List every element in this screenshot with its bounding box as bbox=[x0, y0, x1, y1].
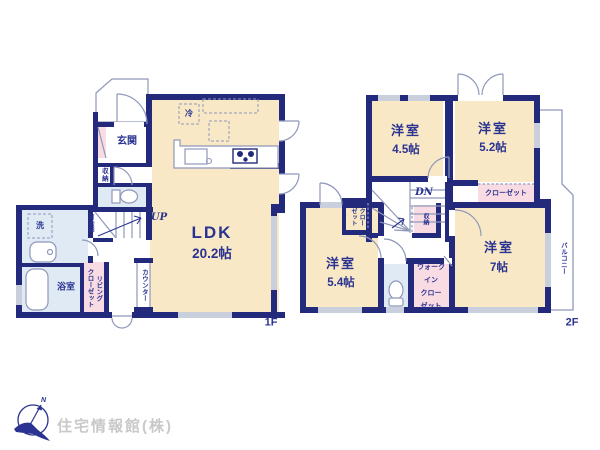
room-label-ldk: LDK bbox=[192, 223, 233, 243]
room-size-54: 5.4帖 bbox=[327, 277, 355, 291]
compass-logo bbox=[14, 405, 50, 441]
fridge-label: 冷 bbox=[185, 109, 193, 119]
floor2-toilet-icon bbox=[389, 281, 403, 306]
toilet-bowl-icon bbox=[121, 190, 138, 203]
room-size-45: 4.5帖 bbox=[392, 144, 420, 158]
room-label-54: 洋室 bbox=[326, 256, 356, 272]
room-label-bath: 浴室 bbox=[57, 282, 75, 293]
room-size-52: 5.2帖 bbox=[479, 142, 507, 156]
washer-label: 洗 bbox=[36, 221, 44, 231]
bathtub-icon bbox=[26, 269, 48, 310]
room-label-45: 洋室 bbox=[391, 123, 421, 139]
closet-label-52: クローゼット bbox=[485, 190, 527, 198]
stairs-dn-label: DN bbox=[415, 187, 433, 199]
compass-north-label: N bbox=[41, 397, 46, 404]
room-label-entrance: 玄関 bbox=[117, 136, 137, 148]
company-name: 住宅情報館(株) bbox=[57, 415, 173, 436]
room-size-7: 7帖 bbox=[490, 262, 508, 276]
balcony-label: バルコニー bbox=[558, 242, 567, 275]
kitchen-sink-icon bbox=[185, 149, 207, 164]
stairs-up-label: UP bbox=[151, 212, 167, 224]
entrance-porch bbox=[96, 79, 148, 122]
room-size-ldk: 20.2帖 bbox=[192, 246, 232, 262]
floor1-stair-arrow bbox=[98, 216, 141, 236]
counter-label: カウンター bbox=[139, 269, 148, 302]
room-label-movable-shelf: 可動棚 bbox=[86, 214, 94, 232]
closet-label-54: クロー ゼット bbox=[349, 208, 365, 226]
compass-bird-icon bbox=[14, 423, 50, 441]
room-label-7: 洋室 bbox=[484, 240, 514, 256]
storage-label-2f: 収納 bbox=[421, 213, 429, 225]
room-label-living-closet: リビング クローゼット bbox=[84, 269, 102, 308]
toilet-tank-icon bbox=[112, 190, 120, 203]
floor1-label: 1F bbox=[265, 316, 278, 329]
walkin-closet-label: ウォーク イン クロー ゼット bbox=[417, 261, 445, 313]
room-label-storage-1f: 収納 bbox=[99, 168, 108, 183]
room-label-52: 洋室 bbox=[478, 121, 508, 137]
floorplan-page: 玄関 収納 可動棚 UP 洗 浴室 リビング クローゼット カウンター LDK … bbox=[0, 0, 600, 450]
floor2-label: 2F bbox=[566, 316, 579, 329]
